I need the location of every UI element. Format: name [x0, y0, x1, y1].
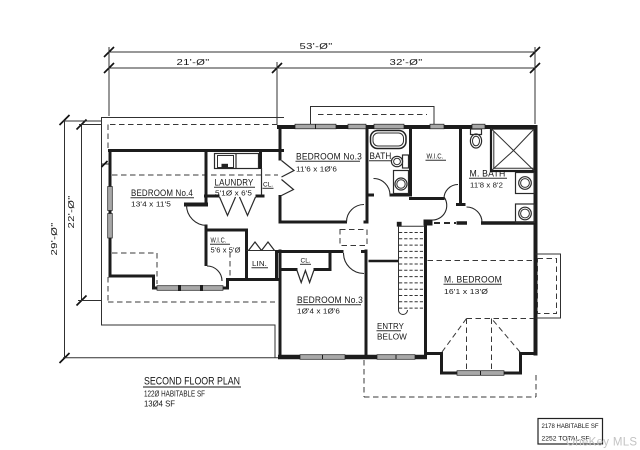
svg-text:SECOND FLOOR PLAN: SECOND FLOOR PLAN — [144, 376, 240, 388]
svg-text:2178 HABITABLE SF: 2178 HABITABLE SF — [542, 423, 599, 430]
svg-text:BEDROOM No.3: BEDROOM No.3 — [296, 152, 362, 162]
svg-text:22'-Ø": 22'-Ø" — [67, 196, 76, 229]
svg-text:13'4 x 11'5: 13'4 x 11'5 — [131, 200, 171, 209]
svg-text:122Ø HABITABLE SF: 122Ø HABITABLE SF — [144, 390, 205, 399]
svg-text:OneKey MLS: OneKey MLS — [566, 437, 637, 449]
svg-text:BEDROOM No.3: BEDROOM No.3 — [297, 295, 363, 305]
svg-text:LAUNDRY: LAUNDRY — [215, 178, 254, 188]
svg-text:M. BEDROOM: M. BEDROOM — [444, 275, 502, 285]
svg-text:LIN.: LIN. — [252, 259, 267, 268]
svg-text:21'-Ø": 21'-Ø" — [177, 58, 210, 67]
svg-text:32'-Ø": 32'-Ø" — [390, 58, 423, 67]
svg-text:53'-Ø": 53'-Ø" — [300, 42, 333, 51]
svg-text:CL.: CL. — [301, 258, 311, 265]
svg-text:5'1Ø x 6'5: 5'1Ø x 6'5 — [215, 189, 252, 198]
svg-text:13Ø4 SF: 13Ø4 SF — [144, 400, 175, 409]
svg-text:CL.: CL. — [263, 182, 273, 189]
svg-text:ENTRY: ENTRY — [377, 322, 405, 331]
svg-text:5'6 x 5'Ø: 5'6 x 5'Ø — [211, 246, 241, 255]
svg-text:BEDROOM No.4: BEDROOM No.4 — [131, 188, 193, 198]
svg-text:BELOW: BELOW — [377, 333, 407, 342]
svg-text:11'8 x 8'2: 11'8 x 8'2 — [470, 181, 503, 190]
svg-text:1Ø'4 x 1Ø'6: 1Ø'4 x 1Ø'6 — [297, 307, 340, 316]
svg-text:W.I.C.: W.I.C. — [211, 236, 227, 245]
svg-text:16'1 x 13'Ø: 16'1 x 13'Ø — [444, 287, 488, 296]
svg-text:11'6 x 1Ø'6: 11'6 x 1Ø'6 — [296, 165, 337, 174]
svg-text:W.I.C.: W.I.C. — [427, 152, 444, 161]
svg-text:29'-Ø": 29'-Ø" — [50, 223, 59, 256]
svg-text:M. BATH: M. BATH — [470, 169, 506, 179]
svg-text:BATH: BATH — [370, 151, 392, 161]
